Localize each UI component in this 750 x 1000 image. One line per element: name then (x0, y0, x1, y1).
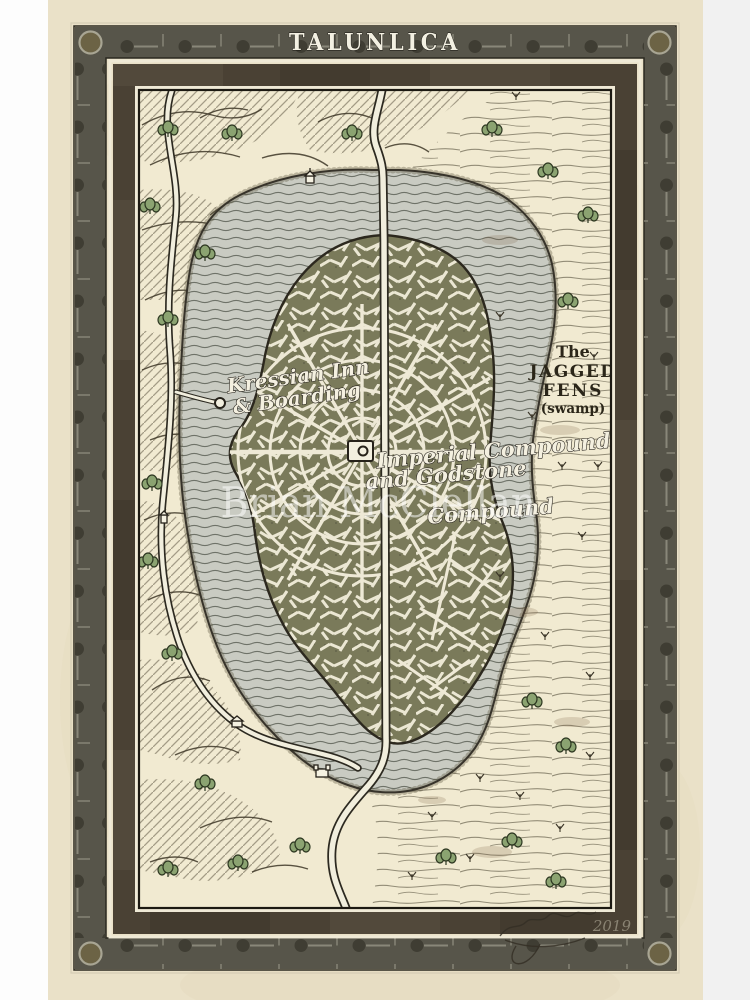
signature-year: 2019 (592, 917, 632, 935)
artist-watermark: Brian McClellan (221, 478, 536, 527)
fens-label-line2: JAGGED (528, 362, 617, 382)
fens-label-line1: The (556, 342, 590, 361)
talunlica-map-print: TALUNLICA (0, 0, 750, 1000)
right-gutter (703, 0, 750, 1000)
map-title: TALUNLICA (289, 29, 461, 56)
fens-label-line4: (swamp) (541, 401, 605, 417)
kressian-inn-marker (215, 398, 225, 408)
art-print-page: TALUNLICA (0, 0, 750, 1000)
fens-label-line3: FENS (543, 381, 604, 401)
imperial-compound-marker (348, 441, 373, 461)
map-canvas: Kressian Inn & Boarding Imperial Compoun… (138, 90, 616, 908)
